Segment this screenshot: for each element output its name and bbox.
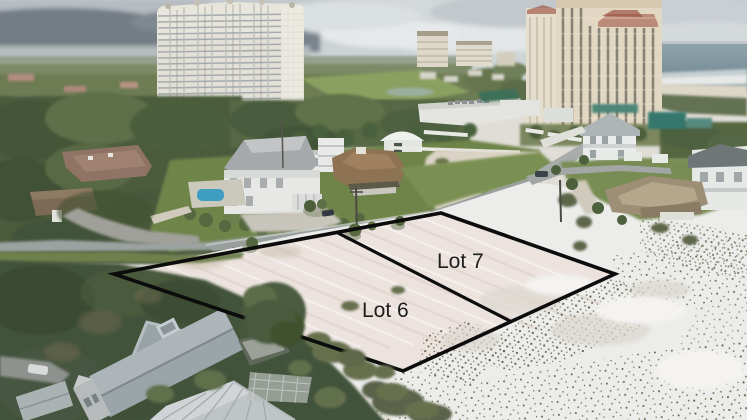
svg-text:Lot 6: Lot 6	[362, 299, 409, 322]
svg-text:Lot 7: Lot 7	[437, 250, 484, 273]
